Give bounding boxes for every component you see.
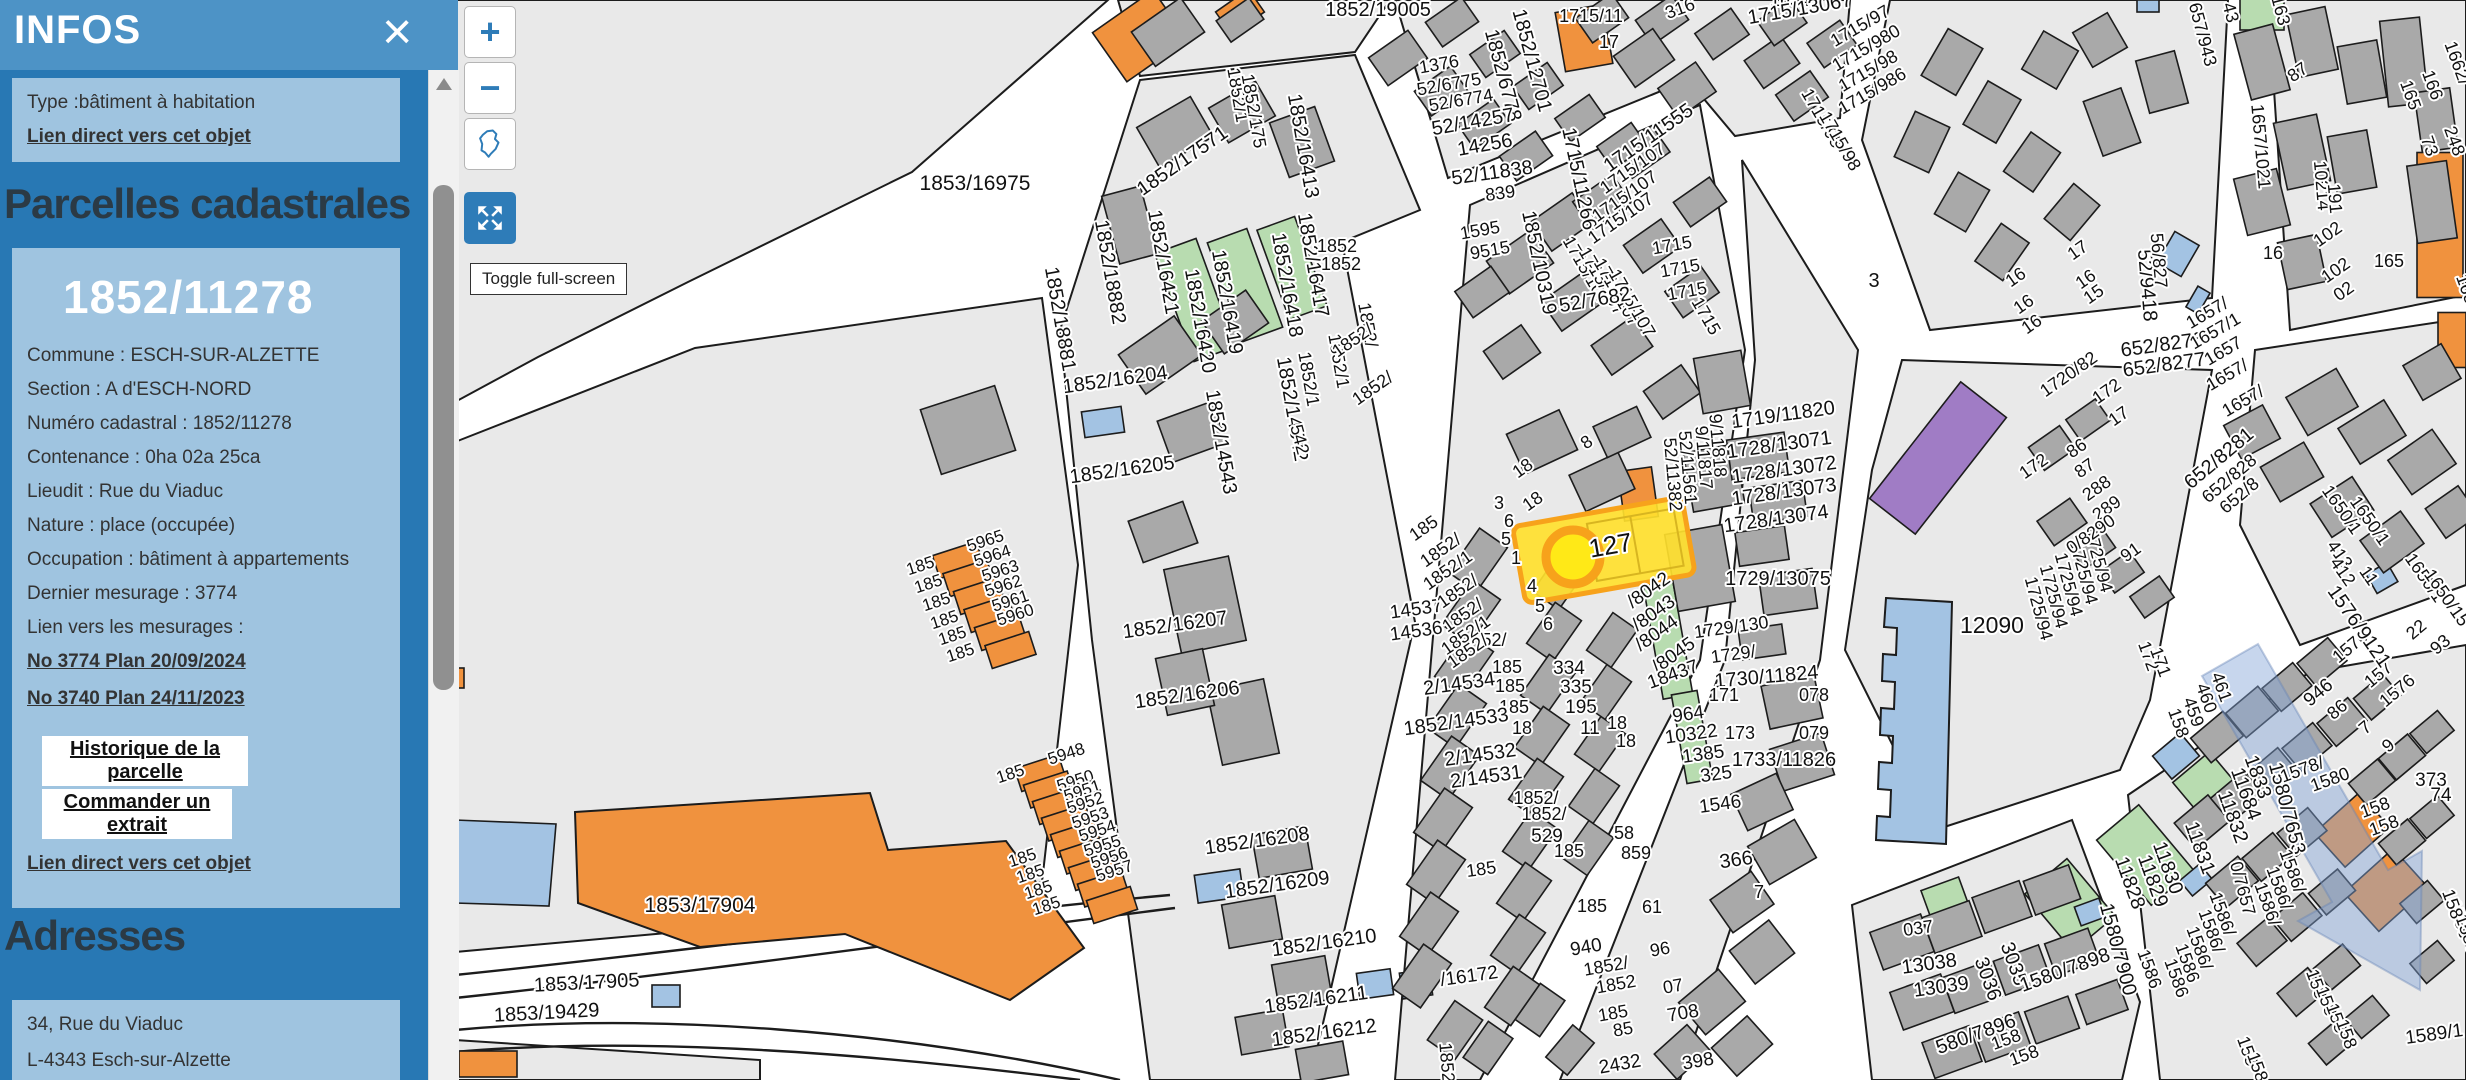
parcel-details: Commune : ESCH-SUR-ALZETTESection : A d'… (27, 346, 385, 637)
parcel-label: 185 (1577, 896, 1607, 916)
zoom-out-button[interactable]: − (464, 62, 516, 114)
blue-parcel (2137, 0, 2159, 12)
object-direct-link[interactable]: Lien direct vers cet objet (27, 126, 385, 148)
object-info-card: Type :bâtiment à habitation Lien direct … (12, 78, 400, 162)
parcel-label: 18 (1616, 731, 1636, 751)
parcel-label: 325 (1699, 762, 1733, 787)
parcel-label: 1853/17904 (645, 894, 756, 917)
parcel-label: 5 (1501, 529, 1511, 549)
minus-icon: − (479, 67, 500, 109)
parcel-label: 398 (1681, 1048, 1716, 1074)
parcel-label: 171 (1709, 685, 1739, 705)
parcel-detail-line: Lieudit : Rue du Viaduc (27, 482, 385, 502)
parcel-label: 07 (1661, 975, 1684, 998)
parcel-label: 079 (1799, 723, 1829, 743)
water-parcel (455, 820, 556, 906)
orange-building (459, 1051, 517, 1077)
scrollbar-thumb[interactable] (433, 185, 454, 690)
parcel-label: 195 (1565, 697, 1597, 718)
parcel-label: 078 (1799, 685, 1829, 705)
measurement-plan-link[interactable]: No 3774 Plan 20/09/2024 (27, 651, 385, 673)
building (1729, 920, 1794, 984)
parcel-label: 1729/13075 (1725, 568, 1831, 590)
address-card: 34, Rue du ViaducL-4343 Esch-sur-Alzette (12, 1000, 400, 1080)
measurement-plan-link[interactable]: No 3740 Plan 24/11/2023 (27, 688, 385, 710)
parcel-label: 6 (1504, 511, 1514, 531)
fullscreen-tooltip: Toggle full-screen (470, 263, 627, 295)
parcel-label: 366 (1718, 847, 1754, 873)
building (1694, 350, 1751, 413)
parcel-number: 1852/11278 (63, 270, 385, 324)
parcel-label: 5 (1535, 596, 1545, 616)
parcel-label: 173 (1725, 723, 1755, 743)
parcel-label: 3 (1494, 493, 1504, 513)
parcel-label: 1852 (1317, 236, 1357, 256)
parcel-detail-line: Dernier mesurage : 3774 (27, 584, 385, 604)
parcel-label: 22 (2402, 615, 2430, 643)
parcel-label: 185 (1492, 657, 1522, 677)
parcel-label: 18 (1512, 718, 1532, 738)
parcel-label: 1853/16975 (920, 172, 1031, 195)
parcel-detail-line: Nature : place (occupée) (27, 516, 385, 536)
parcel-card: 1852/11278 Commune : ESCH-SUR-ALZETTESec… (12, 248, 400, 908)
address-line: 34, Rue du Viaduc (27, 1014, 385, 1036)
scroll-up-icon[interactable] (436, 78, 452, 90)
parcel-detail-line: Section : A d'ESCH-NORD (27, 380, 385, 400)
fullscreen-icon (475, 203, 505, 233)
parcel-label: 1852/ (1521, 804, 1566, 824)
parcel-label: 61 (1642, 897, 1662, 917)
parcel-label: 12090 (1960, 612, 2024, 638)
parcel-actions: Historique de la parcelleCommander un ex… (27, 736, 385, 839)
blue-parcel (1081, 406, 1124, 437)
parcel-history-button[interactable]: Historique de la parcelle (42, 736, 248, 786)
plus-icon: + (479, 11, 500, 53)
parcel-detail-line: Commune : ESCH-SUR-ALZETTE (27, 346, 385, 366)
parcel-label: 859 (1621, 843, 1651, 863)
panel-title: INFOS (14, 8, 141, 53)
section-heading-adresses: Adresses (4, 912, 185, 960)
zoom-in-button[interactable]: + (464, 6, 516, 58)
blue-parcel (652, 985, 680, 1007)
parcel-label: 1852 (1435, 1042, 1458, 1080)
parcel-label: 18 (1607, 713, 1627, 733)
parcel-label: 185 (1465, 857, 1498, 881)
address-line: L-4343 Esch-sur-Alzette (27, 1050, 385, 1072)
parcel-detail-line: Numéro cadastral : 1852/11278 (27, 414, 385, 434)
parcel-label: 85 (1611, 1018, 1634, 1041)
parcel-label: 037 (1902, 916, 1935, 940)
parcel-detail-line: Occupation : bâtiment à appartements (27, 550, 385, 570)
zoom-to-extent-button[interactable] (464, 118, 516, 170)
info-panel: INFOS × Type :bâtiment à habitation Lien… (0, 0, 458, 1080)
parcel-label: 1715/11 (1559, 6, 1623, 26)
parcel-label: 11 (1580, 718, 1600, 739)
info-panel-header: INFOS × (0, 0, 458, 70)
parcel-label: 1 (1511, 548, 1521, 568)
order-extract-button[interactable]: Commander un extrait (42, 789, 232, 839)
parcel-label: 7 (1754, 882, 1764, 902)
parcel-label: 839 (1484, 181, 1517, 205)
parcel-label: 96 (1648, 938, 1671, 961)
parcel-label: 4 (1527, 576, 1537, 596)
parcel-label: 16 (2263, 243, 2283, 263)
parcel-label: 58 (1614, 823, 1634, 843)
parcel-label: 185 (1554, 841, 1584, 861)
object-type-label: Type :bâtiment à habitation (27, 92, 385, 114)
parcel-label: 191 (2324, 183, 2347, 215)
parcel-label: 17 (1599, 32, 1619, 52)
parcel-label: 3 (1868, 270, 1879, 292)
section-heading-parcelles: Parcelles cadastrales (4, 180, 410, 228)
parcel-label: 1853/17905 (533, 969, 640, 997)
parcel-label: 6 (1543, 614, 1553, 634)
parcel-detail-line: Contenance : 0ha 02a 25ca (27, 448, 385, 468)
fullscreen-button[interactable] (464, 192, 516, 244)
parcel-label: 334 (1553, 658, 1585, 679)
luxembourg-outline-icon (473, 127, 507, 161)
parcel-label: 165 (2374, 251, 2404, 271)
parcel-direct-link[interactable]: Lien direct vers cet objet (27, 853, 385, 875)
parcel-detail-line: Lien vers les mesurages : (27, 618, 385, 638)
measurement-links: No 3774 Plan 20/09/2024No 3740 Plan 24/1… (27, 651, 385, 710)
panel-scrollbar[interactable] (428, 70, 459, 1080)
parcel-label: 185 (1495, 676, 1525, 696)
building (1711, 1016, 1772, 1076)
parcel-label: 1733/11826 (1732, 749, 1836, 771)
close-icon[interactable]: × (382, 2, 412, 62)
parcel-label: 335 (1560, 677, 1592, 698)
parcel-label: 74 (2430, 785, 2452, 806)
parcel-label: 1852/19005 (1325, 0, 1431, 21)
parcel-label: 1852 (1321, 254, 1361, 274)
